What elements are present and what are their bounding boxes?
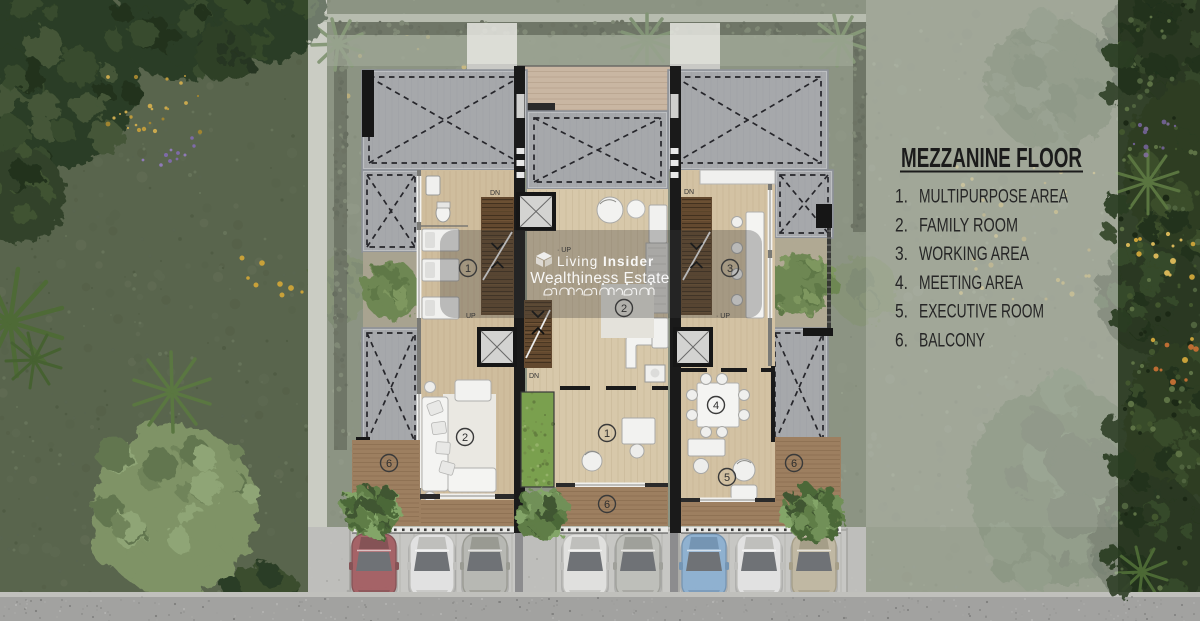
svg-text:1.: 1. <box>895 187 908 208</box>
svg-text:1: 1 <box>604 428 610 440</box>
svg-text:2.: 2. <box>895 215 908 236</box>
svg-text:DN: DN <box>490 190 500 197</box>
svg-text:Living Insider: Living Insider <box>557 254 654 269</box>
svg-text:FAMILY ROOM: FAMILY ROOM <box>919 214 1018 236</box>
svg-text:4: 4 <box>713 400 719 412</box>
svg-text:2: 2 <box>462 432 468 444</box>
svg-text:WORKING AREA: WORKING AREA <box>919 243 1029 265</box>
svg-text:Wealthiness Estate: Wealthiness Estate <box>530 270 670 287</box>
svg-text:DN: DN <box>529 373 539 380</box>
svg-text:6: 6 <box>604 499 610 511</box>
svg-text:3.: 3. <box>895 244 908 265</box>
svg-text:EXECUTIVE ROOM: EXECUTIVE ROOM <box>919 301 1044 323</box>
svg-text:BALCONY: BALCONY <box>919 330 985 352</box>
svg-text:4.: 4. <box>895 273 908 294</box>
svg-text:6.: 6. <box>895 331 908 352</box>
svg-text:6: 6 <box>386 458 392 470</box>
svg-text:5: 5 <box>724 472 730 484</box>
svg-text:MULTIPURPOSE AREA: MULTIPURPOSE AREA <box>919 186 1068 208</box>
svg-text:DN: DN <box>684 189 694 196</box>
svg-text:MEETING AREA: MEETING AREA <box>919 272 1023 294</box>
svg-text:MEZZANINE FLOOR: MEZZANINE FLOOR <box>901 142 1082 173</box>
svg-text:6: 6 <box>791 458 797 470</box>
svg-text:5.: 5. <box>895 302 908 323</box>
